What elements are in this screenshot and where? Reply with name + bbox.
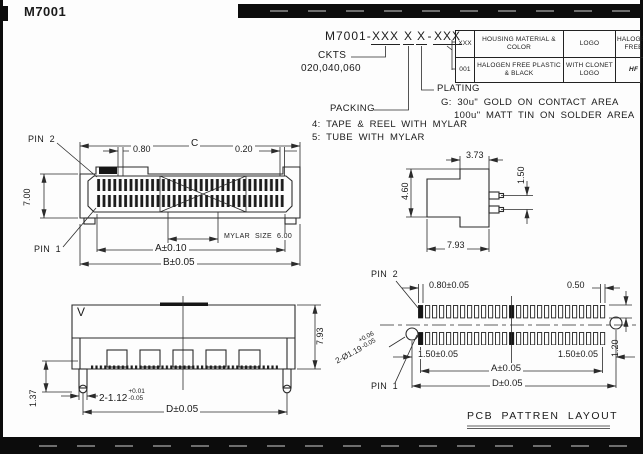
part-number-plating-code: X — [416, 29, 427, 45]
top-view-dim-height: 7.00 — [23, 188, 32, 206]
front-view-tol-plus: +0.01 — [128, 388, 144, 395]
plating-label: PLATING — [437, 84, 480, 94]
table-col-housing: HOUSING MATERIAL & COLOR — [474, 31, 563, 57]
packing-option-5: 5: TUBE WITH MYLAR — [312, 133, 425, 143]
top-view-dim-pitch: 0.80 — [131, 145, 153, 154]
page-title: M7001 — [24, 5, 66, 18]
ckts-values: 020,040,060 — [301, 64, 361, 74]
side-view-linework — [406, 156, 533, 252]
table-row-housing: HALOGEN FREE PLASTIC & BLACK — [474, 57, 563, 82]
pcb-dim-gap: 0.50 — [565, 281, 587, 290]
top-view-mylar-note: MYLAR SIZE 6.00 — [222, 233, 294, 240]
side-view-dim-width: 3.73 — [464, 151, 486, 160]
pcb-dim-right: 1.50±0.05 — [556, 350, 600, 359]
front-view-tol-minus: -0.05 — [128, 395, 144, 402]
binder-mark — [0, 6, 8, 21]
plating-option-g: G: 30u" GOLD ON CONTACT AREA — [441, 98, 619, 108]
redacted-header-bar — [238, 4, 643, 18]
solder-leads-row — [90, 366, 278, 370]
pcb-dim-a: A±0.05 — [489, 364, 523, 374]
top-view-pin2-label: PIN 2 — [28, 135, 55, 144]
table-col-xxx: XXX — [456, 31, 474, 57]
pcb-pin1-label: PIN 1 — [371, 382, 398, 391]
polarity-mark — [99, 167, 117, 174]
plating-option-g2: 100u" MATT TIN ON SOLDER AREA — [454, 111, 635, 121]
part-number-prefix: M7001- — [325, 29, 371, 43]
part-number-ckts-code: XXX — [371, 29, 400, 45]
front-view-dim-peg: 1.37 — [29, 389, 38, 407]
title-underline — [467, 426, 610, 429]
table-col-logo: LOGO — [563, 31, 615, 57]
table-col-halogen: HALOGEN FREE — [615, 31, 643, 57]
side-view-dim-height: 4.60 — [401, 182, 410, 200]
top-view-dim-a: A±0.10 — [153, 244, 189, 254]
pcb-dim-pad: 0.80±0.05 — [427, 281, 471, 290]
table-row-code: 001 — [456, 57, 474, 82]
side-view-dim-pin-pitch: 1.50 — [517, 166, 526, 184]
mount-hole-right — [610, 317, 622, 329]
drawing-sheet: M7001 M7001- XXX X X - XXX CKTS 020,040,… — [0, 0, 643, 454]
table-row-halogen: HF — [615, 57, 643, 82]
front-view-dim-d: D±0.05 — [164, 405, 200, 415]
top-tape-mark — [160, 303, 208, 307]
pcb-dim-d: D±0.05 — [490, 379, 525, 389]
contact-row — [96, 179, 284, 207]
ckts-label: CKTS — [318, 51, 346, 61]
top-view-dim-b: B±0.05 — [161, 258, 197, 268]
part-number-leaders — [351, 40, 455, 110]
front-view-dim-feet: 2-1.12 — [99, 393, 127, 404]
redacted-footer-bar — [0, 437, 643, 454]
front-view-feet-dim: 2-1.12+0.01-0.05 — [99, 388, 145, 405]
packing-label: PACKING — [330, 104, 375, 114]
mount-hole-left — [406, 328, 418, 340]
table-row-logo: WITH CLONET LOGO — [563, 57, 615, 82]
top-view-dim-020: 0.20 — [233, 145, 255, 154]
pcb-pin2-label: PIN 2 — [371, 270, 398, 279]
top-view-dim-c: C — [189, 139, 200, 149]
pcb-layout-title: PCB PATTREN LAYOUT — [467, 411, 618, 422]
pcb-dim-row: 1.20 — [611, 339, 620, 357]
part-number-packing-code: X — [403, 29, 414, 45]
front-view-dim-height: 7.93 — [316, 327, 325, 345]
top-view-pin1-label: PIN 1 — [34, 245, 61, 254]
front-view-v-mark: V — [77, 306, 85, 318]
packing-option-4: 4: TAPE & REEL WITH MYLAR — [312, 120, 467, 130]
side-view-dim-depth: 7.93 — [445, 241, 467, 250]
frame-left — [0, 0, 3, 454]
options-table: XXX HOUSING MATERIAL & COLOR LOGO HALOGE… — [455, 30, 641, 83]
pcb-dim-left: 1.50±0.05 — [416, 350, 460, 359]
